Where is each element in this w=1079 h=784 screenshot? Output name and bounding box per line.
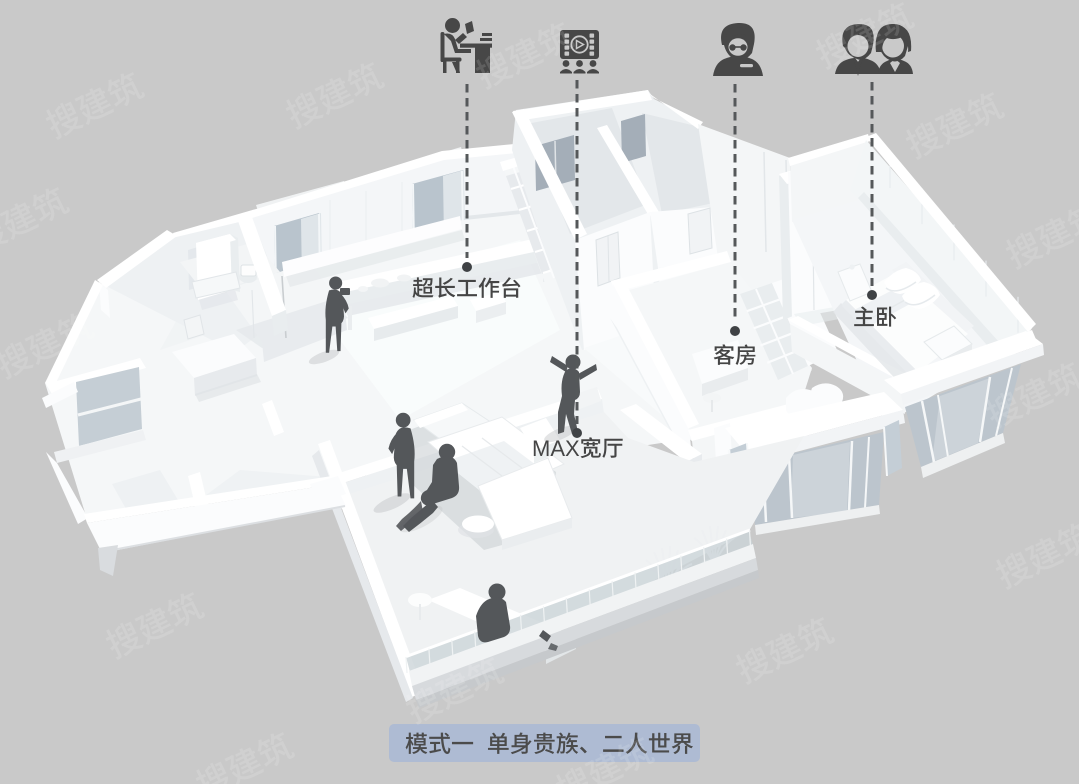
svg-text:MAX: MAX [532, 436, 580, 461]
